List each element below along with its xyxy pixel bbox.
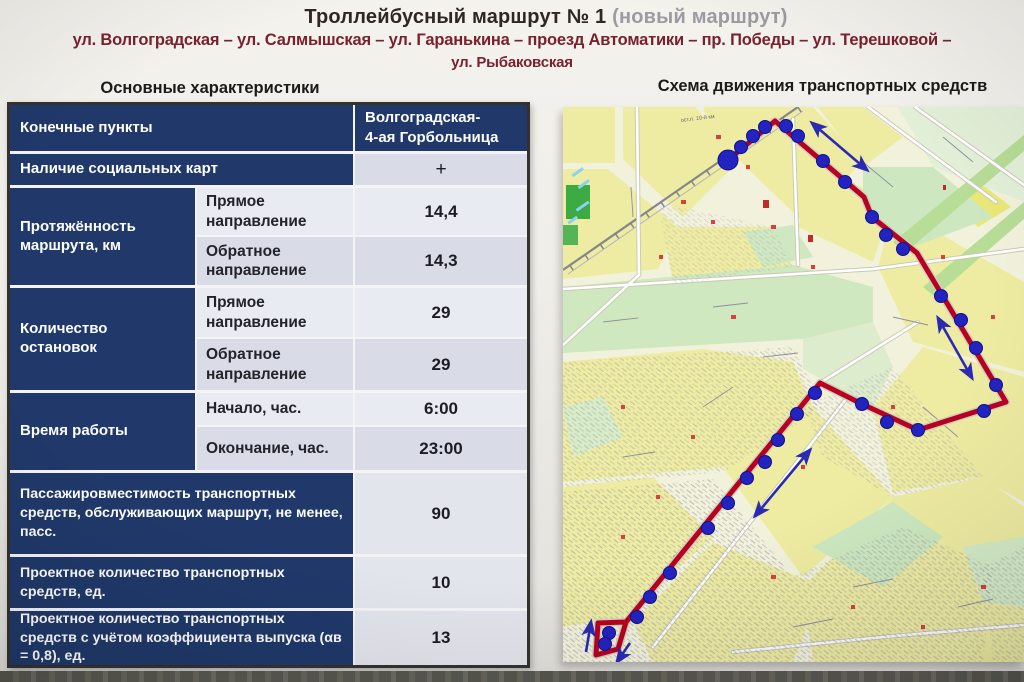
- length-forward-value: 14,4: [353, 185, 527, 235]
- slide-photo: { "slide": { "title": "Троллейбусный мар…: [0, 0, 1024, 682]
- capacity-value: 90: [353, 470, 527, 554]
- endpoints-value: Волгоградская- 4-ая Горбольница: [353, 105, 527, 151]
- hours-group-label: Время работы: [10, 390, 195, 470]
- characteristics-heading: Основные характеристики: [0, 79, 420, 98]
- hours-end-value: 23:00: [353, 425, 527, 470]
- length-group-label: Протяжённость маршрута, км: [10, 185, 195, 285]
- stops-backward-label: Обратное направление: [195, 337, 353, 390]
- route-street-list-line2: ул. Рыбаковская: [0, 54, 1024, 71]
- route-map: ост.п. 10-й км: [563, 107, 1024, 662]
- slide-title-note: (новый маршрут): [612, 6, 788, 28]
- social-cards-label: Наличие социальных карт: [10, 151, 353, 185]
- scheme-heading: Схема движения транспортных средств: [592, 77, 1024, 96]
- characteristics-table: Конечные пункты Волгоградская- 4-ая Горб…: [7, 102, 530, 668]
- length-backward-value: 14,3: [353, 235, 527, 285]
- stops-backward-value: 29: [353, 337, 527, 390]
- capacity-label: Пассажировместимость транспортных средст…: [10, 470, 353, 554]
- planned-vehicles-label: Проектное количество транспортных средст…: [10, 554, 353, 608]
- slide-title: Троллейбусный маршрут № 1 (новый маршрут…: [34, 6, 1024, 29]
- route-street-list-line1: ул. Волгоградская – ул. Салмышская – ул.…: [0, 31, 1024, 50]
- planned-vehicles-coeff-label: Проектное количество транспортных средст…: [10, 608, 353, 665]
- length-forward-label: Прямое направление: [195, 185, 353, 235]
- cut-off-text-band: [0, 671, 1024, 682]
- endpoints-label: Конечные пункты: [10, 105, 353, 151]
- route-map-canvas: ост.п. 10-й км: [563, 107, 1024, 662]
- hours-end-label: Окончание, час.: [195, 425, 353, 470]
- hours-start-value: 6:00: [353, 390, 527, 425]
- social-cards-value: +: [353, 151, 527, 185]
- planned-vehicles-value: 10: [353, 554, 527, 608]
- hours-start-label: Начало, час.: [195, 390, 353, 425]
- planned-vehicles-coeff-value: 13: [353, 608, 527, 665]
- slide-title-main: Троллейбусный маршрут № 1: [304, 6, 606, 28]
- length-backward-label: Обратное направление: [195, 235, 353, 285]
- stops-forward-label: Прямое направление: [195, 285, 353, 337]
- stops-group-label: Количество остановок: [10, 285, 195, 390]
- stops-forward-value: 29: [353, 285, 527, 337]
